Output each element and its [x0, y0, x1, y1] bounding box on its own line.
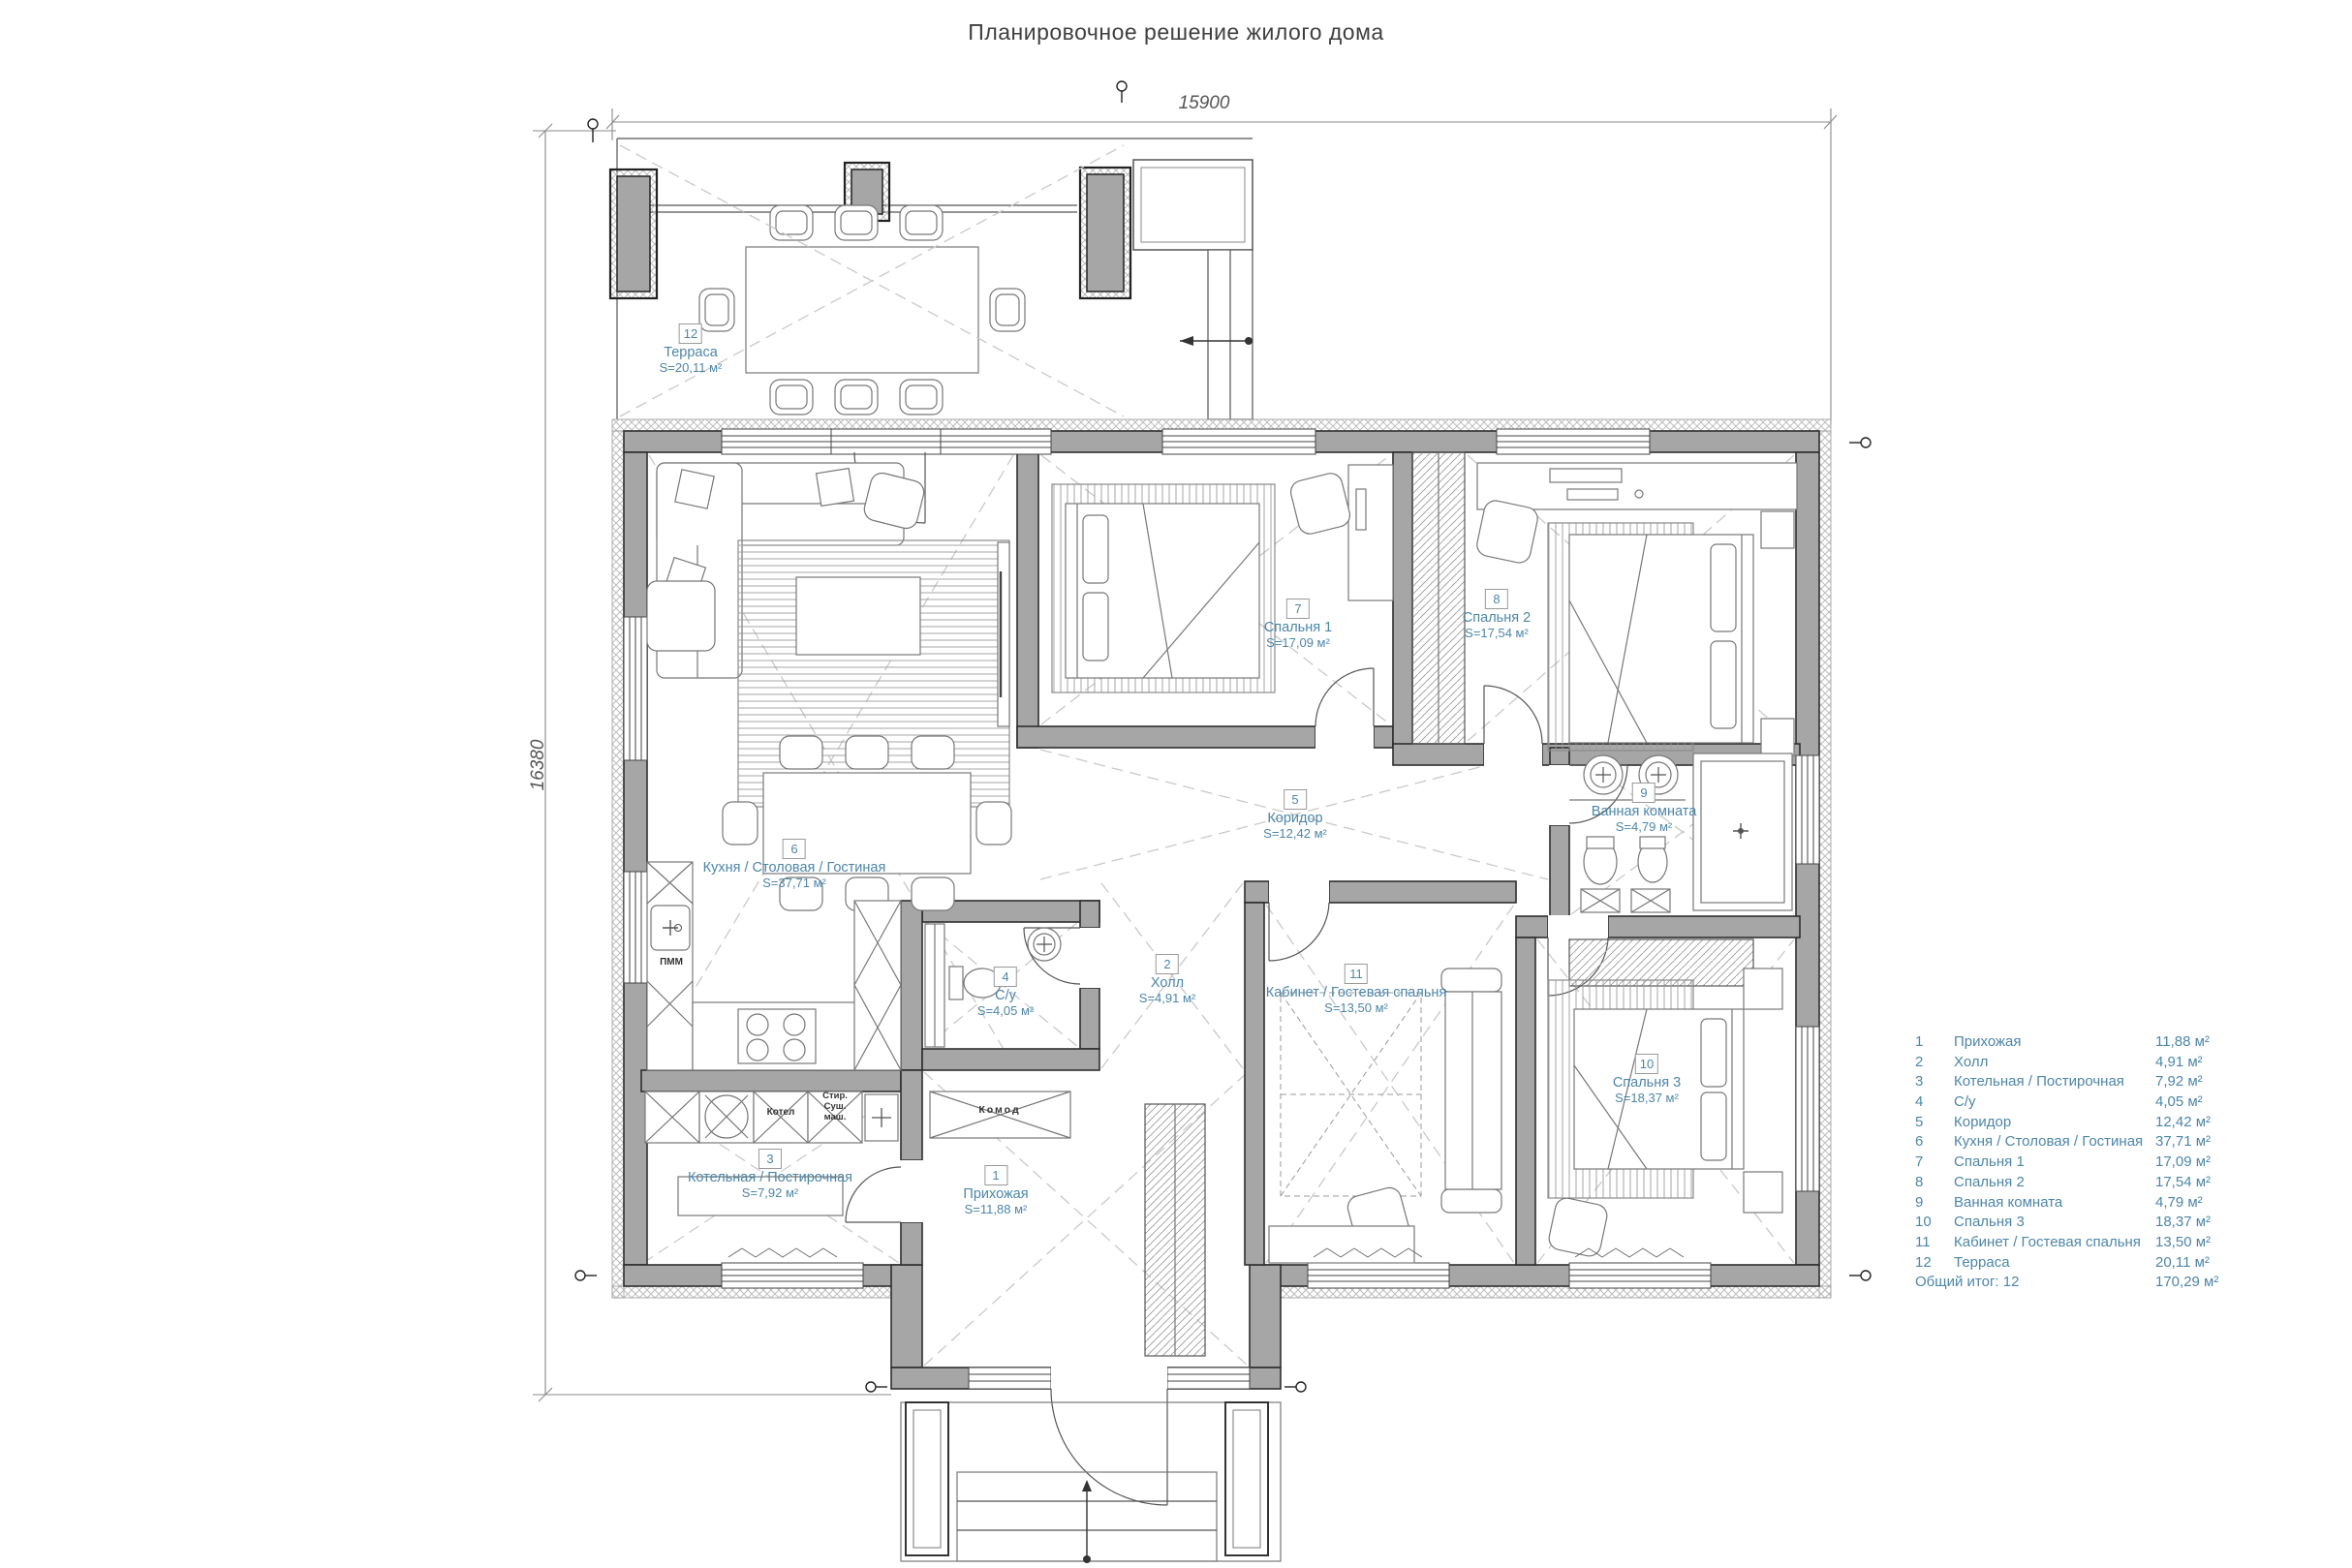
dishwasher-label: ПММ [660, 957, 683, 968]
legend-total-value: 170,29 м² [2155, 1273, 2218, 1293]
terrace-dining-set [699, 205, 1025, 415]
radiators [728, 1248, 1684, 1257]
room-number-badge: 7 [1286, 599, 1310, 619]
room-number-badge: 2 [1156, 954, 1179, 974]
room-number-badge: 5 [1284, 789, 1307, 810]
legend-num: 1 [1915, 1032, 1954, 1053]
room-label-wc: 4 С/у S=4,05 м² [977, 967, 1034, 1018]
legend-row: 8Спальня 217,54 м² [1915, 1173, 2235, 1193]
room-name: Спальня 2 [1463, 611, 1531, 627]
room-number-badge: 11 [1345, 964, 1368, 984]
room-label-study: 11 Кабинет / Гостевая спальня S=13,50 м² [1266, 964, 1447, 1015]
legend-name: Коридор [1954, 1113, 2155, 1133]
room-area: S=4,79 м² [1592, 820, 1697, 834]
legend-name: Котельная / Постирочная [1954, 1072, 2155, 1092]
room-name: Котельная / Постирочная [688, 1171, 852, 1186]
legend-num: 8 [1915, 1173, 1954, 1193]
room-name: Терраса [660, 346, 723, 361]
room-name: Прихожая [963, 1187, 1028, 1203]
dimension-top: 15900 [1179, 93, 1230, 114]
legend-row: 1Прихожая11,88 м² [1915, 1032, 2235, 1053]
legend-total-label: Общий итог: 12 [1915, 1273, 2155, 1293]
legend-row: 3Котельная / Постирочная7,92 м² [1915, 1072, 2235, 1092]
room-label-hall: 2 Холл S=4,91 м² [1139, 954, 1195, 1005]
room-number-badge: 12 [679, 323, 702, 344]
room-number-badge: 10 [1635, 1054, 1658, 1074]
page-title: Планировочное решение жилого дома [0, 19, 2352, 46]
room-area: S=20,11 м² [660, 361, 723, 375]
legend-area: 4,05 м² [2155, 1092, 2203, 1113]
room-name: Коридор [1263, 812, 1327, 827]
legend-row: 9Ванная комната4,79 м² [1915, 1193, 2235, 1214]
legend-num: 11 [1915, 1233, 1954, 1253]
legend-row: 7Спальня 117,09 м² [1915, 1153, 2235, 1173]
room-number-badge: 3 [758, 1149, 782, 1169]
room-area: S=4,05 м² [977, 1004, 1034, 1018]
room-area: S=18,37 м² [1613, 1091, 1681, 1105]
room-area: S=12,42 м² [1263, 827, 1327, 841]
legend-row: 5Коридор12,42 м² [1915, 1113, 2235, 1133]
legend-area: 17,09 м² [2155, 1153, 2211, 1173]
legend-name: Спальня 2 [1954, 1173, 2155, 1193]
room-label-boiler-room: 3 Котельная / Постирочная S=7,92 м² [688, 1149, 852, 1200]
legend-num: 5 [1915, 1113, 1954, 1133]
legend-area: 4,79 м² [2155, 1193, 2203, 1214]
legend-row: 6Кухня / Столовая / Гостиная37,71 м² [1915, 1132, 2235, 1153]
room-number-badge: 8 [1485, 589, 1508, 609]
legend-num: 4 [1915, 1092, 1954, 1113]
legend-area: 12,42 м² [2155, 1113, 2211, 1133]
room-label-kitchen-living: 6 Кухня / Столовая / Гостиная S=37,71 м² [703, 839, 886, 890]
room-label-entry-hall: 1 Прихожая S=11,88 м² [963, 1165, 1028, 1216]
dresser-label: Комод [978, 1104, 1020, 1116]
room-area: S=37,71 м² [703, 876, 886, 890]
room-number-badge: 6 [783, 839, 806, 859]
boiler-label: Котел [767, 1107, 795, 1118]
room-name: Кухня / Столовая / Гостиная [703, 861, 886, 876]
room-number-badge: 9 [1632, 783, 1656, 803]
room-name: Спальня 3 [1613, 1076, 1681, 1091]
legend-num: 9 [1915, 1193, 1954, 1214]
legend-area: 17,54 м² [2155, 1173, 2211, 1193]
legend: 1Прихожая11,88 м² 2Холл4,91 м² 3Котельна… [1915, 1032, 2235, 1293]
legend-num: 6 [1915, 1132, 1954, 1153]
entry-porch [901, 1402, 1281, 1563]
legend-area: 13,50 м² [2155, 1233, 2211, 1253]
legend-num: 12 [1915, 1253, 1954, 1274]
legend-num: 2 [1915, 1053, 1954, 1073]
room-name: Холл [1139, 976, 1195, 992]
bedroom1-furniture [1052, 465, 1393, 692]
legend-name: Ванная комната [1954, 1193, 2155, 1214]
legend-area: 37,71 м² [2155, 1132, 2211, 1153]
legend-row: 10Спальня 318,37 м² [1915, 1213, 2235, 1233]
room-area: S=4,91 м² [1139, 992, 1195, 1005]
wardrobe-bedroom2 [1412, 452, 1465, 744]
legend-num: 7 [1915, 1153, 1954, 1173]
legend-row: 4С/у4,05 м² [1915, 1092, 2235, 1113]
legend-area: 20,11 м² [2155, 1253, 2210, 1274]
room-label-corridor: 5 Коридор S=12,42 м² [1263, 789, 1327, 841]
legend-row: 12Терраса20,11 м² [1915, 1253, 2235, 1274]
legend-num: 3 [1915, 1072, 1954, 1092]
room-area: S=13,50 м² [1266, 1001, 1447, 1015]
washer-dryer-label: Стир. Суш. маш. [822, 1091, 848, 1122]
room-name: Спальня 1 [1264, 621, 1332, 636]
legend-row: 11Кабинет / Гостевая спальня13,50 м² [1915, 1233, 2235, 1253]
legend-name: Спальня 1 [1954, 1153, 2155, 1173]
legend-name: Холл [1954, 1053, 2155, 1073]
legend-name: Терраса [1954, 1253, 2155, 1274]
legend-area: 18,37 м² [2155, 1213, 2211, 1233]
room-number-badge: 4 [994, 967, 1017, 987]
dimension-left: 16380 [528, 740, 549, 791]
room-label-bedroom2: 8 Спальня 2 S=17,54 м² [1463, 589, 1531, 640]
legend-name: С/у [1954, 1092, 2155, 1113]
room-area: S=11,88 м² [963, 1203, 1028, 1216]
legend-num: 10 [1915, 1213, 1954, 1233]
legend-area: 4,91 м² [2155, 1053, 2203, 1073]
room-name: Ванная комната [1592, 805, 1697, 820]
legend-area: 7,92 м² [2155, 1072, 2203, 1092]
living-room-furniture [647, 463, 1009, 807]
legend-area: 11,88 м² [2155, 1032, 2210, 1053]
hallway-furniture [930, 1091, 1205, 1356]
legend-name: Кухня / Столовая / Гостиная [1954, 1132, 2155, 1153]
room-label-bathroom: 9 Ванная комната S=4,79 м² [1592, 783, 1697, 834]
floor-plan-page: Планировочное решение жилого дома 15900 … [0, 0, 2352, 1568]
room-label-terrace: 12 Терраса S=20,11 м² [660, 323, 723, 375]
room-name: Кабинет / Гостевая спальня [1266, 986, 1447, 1001]
room-area: S=17,54 м² [1463, 627, 1531, 640]
room-name: С/у [977, 989, 1034, 1004]
room-label-bedroom1: 7 Спальня 1 S=17,09 м² [1264, 599, 1332, 650]
floor-plan-drawing [0, 0, 2352, 1568]
legend-name: Прихожая [1954, 1032, 2155, 1053]
legend-total-row: Общий итог: 12170,29 м² [1915, 1273, 2235, 1293]
room-label-bedroom3: 10 Спальня 3 S=18,37 м² [1613, 1054, 1681, 1105]
room-area: S=17,09 м² [1264, 636, 1332, 650]
room-number-badge: 1 [984, 1165, 1007, 1185]
room-area: S=7,92 м² [688, 1186, 852, 1200]
legend-name: Кабинет / Гостевая спальня [1954, 1233, 2155, 1253]
legend-name: Спальня 3 [1954, 1213, 2155, 1233]
legend-row: 2Холл4,91 м² [1915, 1053, 2235, 1073]
